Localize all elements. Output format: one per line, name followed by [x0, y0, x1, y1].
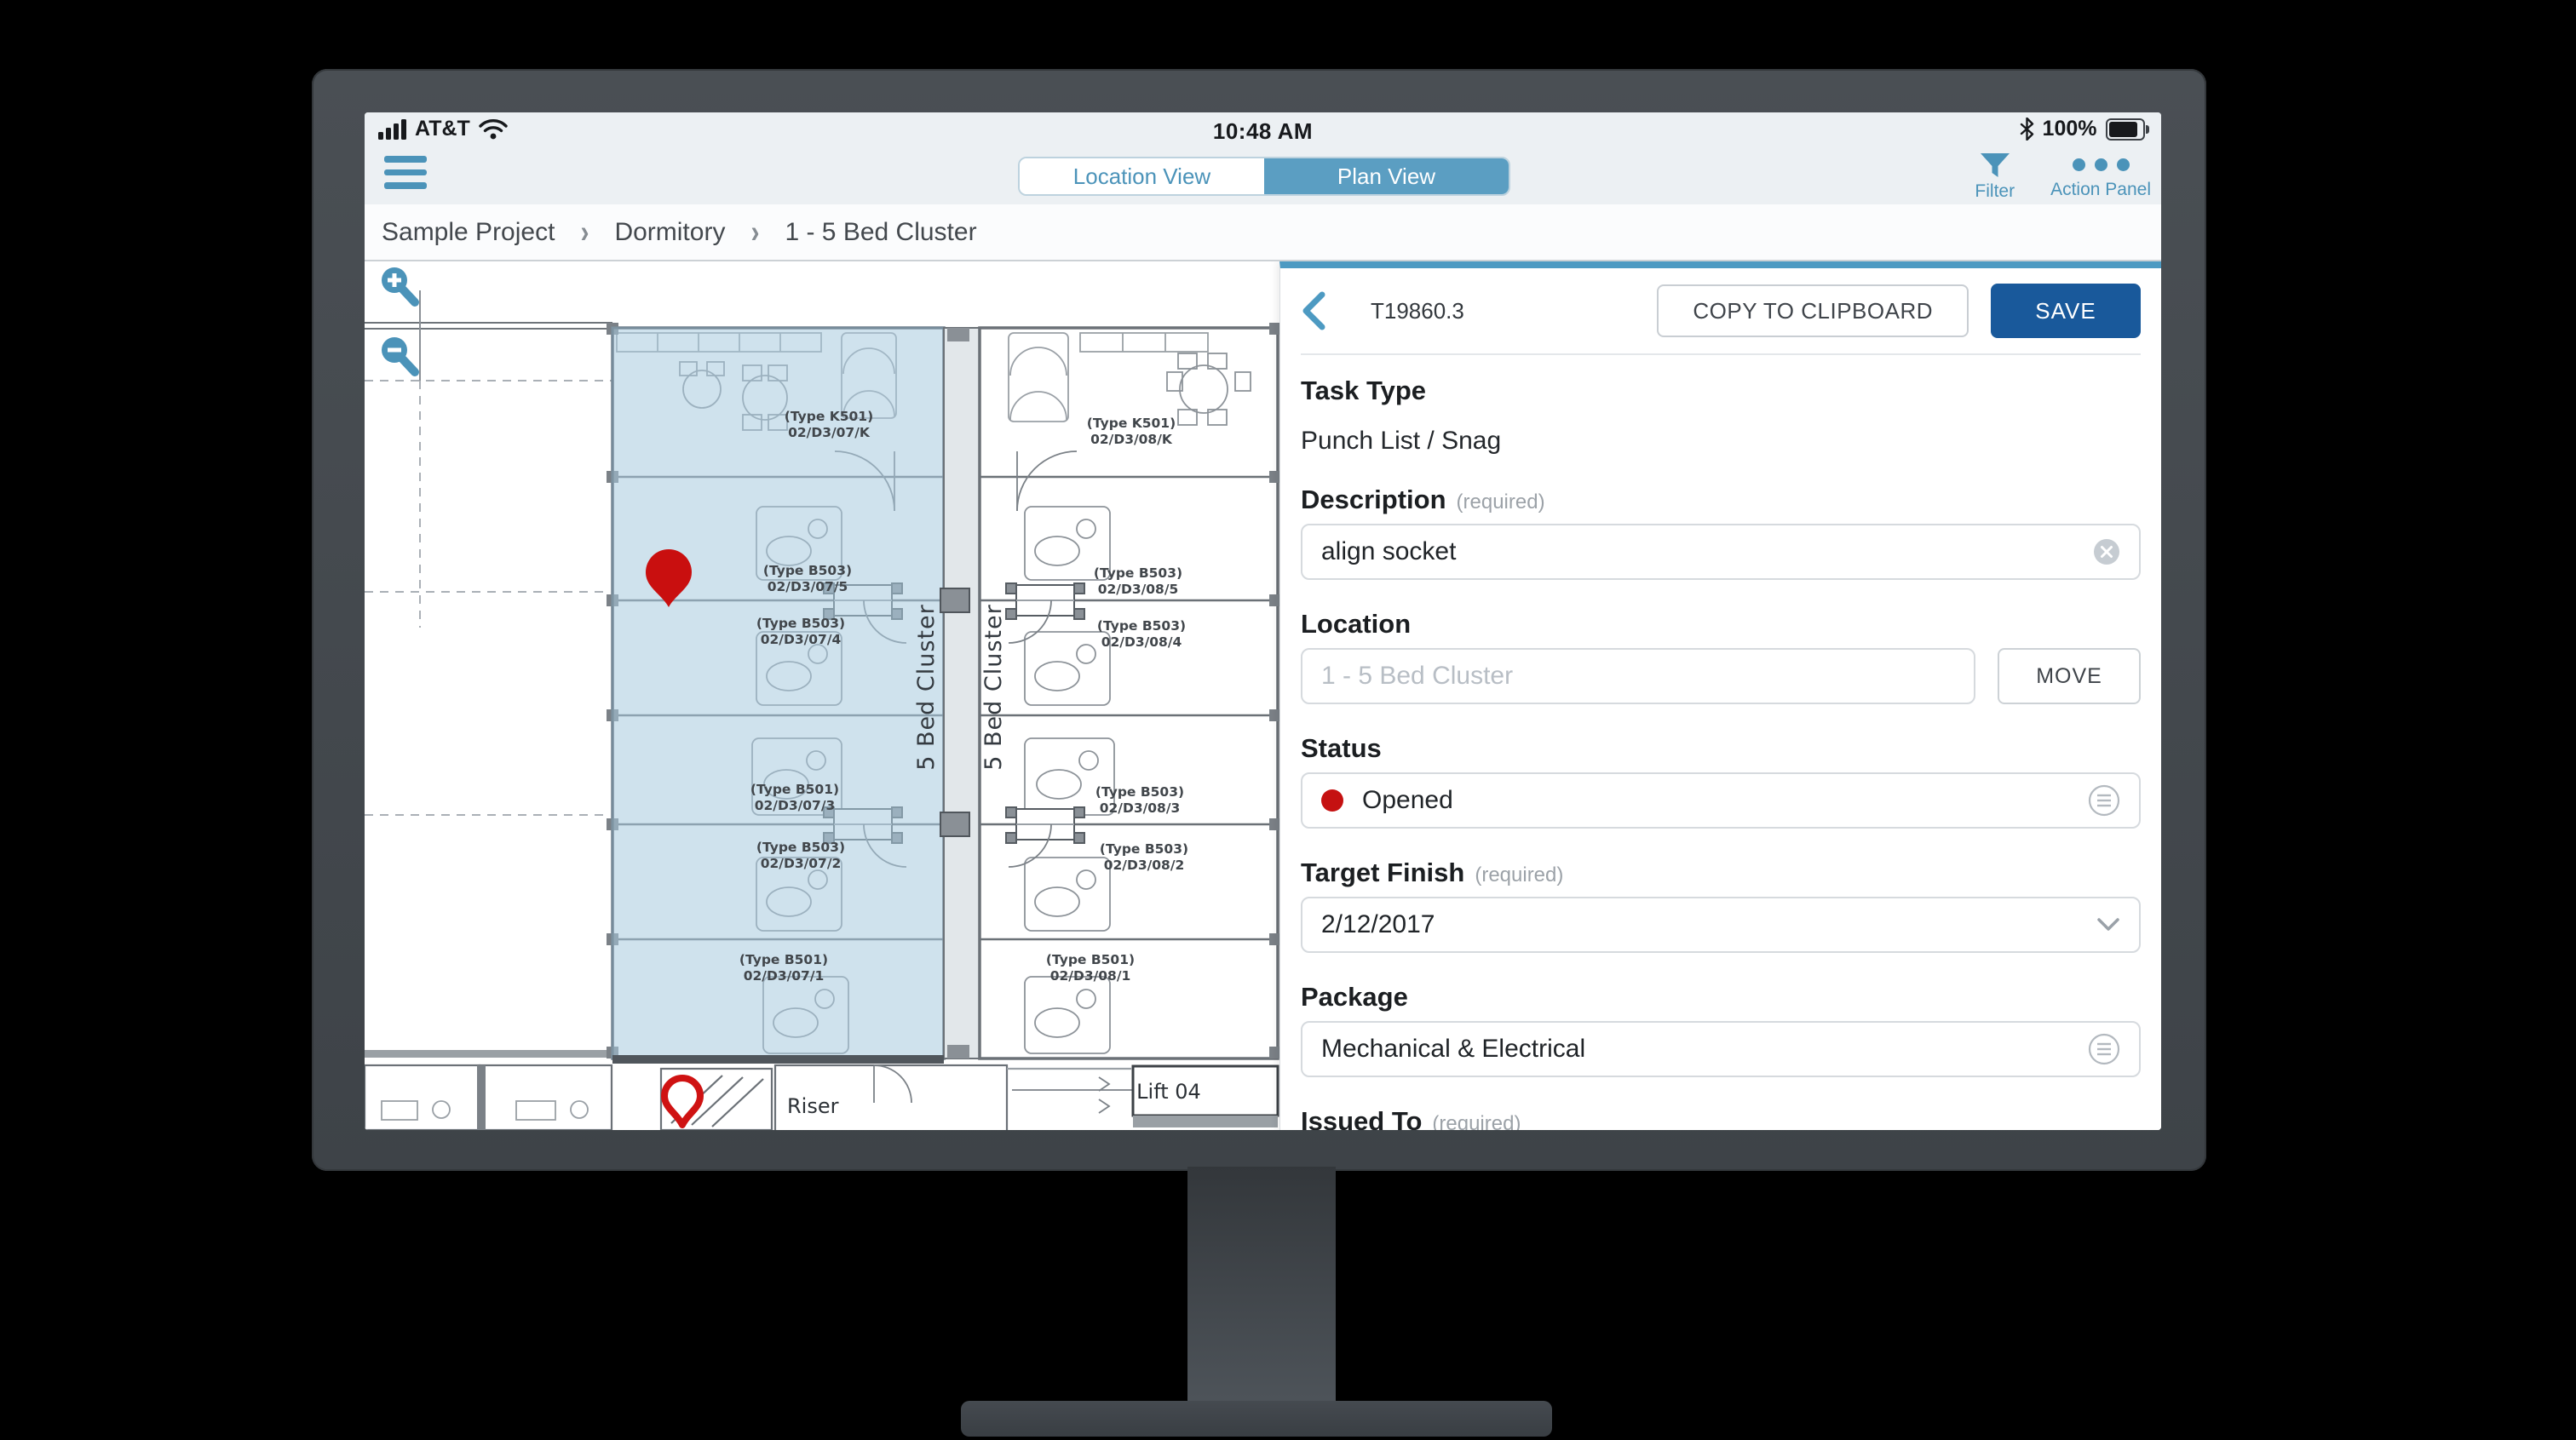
filter-funnel-icon	[1979, 152, 2011, 179]
svg-text:02/D3/07/1: 02/D3/07/1	[744, 968, 825, 984]
target-finish-label: Target Finish (required)	[1301, 858, 2141, 888]
location-input: 1 - 5 Bed Cluster	[1301, 648, 1975, 704]
svg-text:(Type B501): (Type B501)	[1046, 952, 1135, 967]
svg-text:(Type B503): (Type B503)	[1095, 784, 1184, 800]
package-select[interactable]: Mechanical & Electrical	[1301, 1021, 2141, 1077]
svg-text:(Type K501): (Type K501)	[1087, 416, 1176, 431]
issued-to-label: Issued To (required)	[1301, 1106, 2141, 1130]
copy-to-clipboard-button[interactable]: COPY TO CLIPBOARD	[1657, 284, 1969, 337]
svg-text:(Type B503): (Type B503)	[756, 616, 845, 631]
location-label: Location	[1301, 609, 2141, 640]
status-label: Status	[1301, 733, 2141, 764]
view-toggle: Location View Plan View	[1018, 157, 1510, 196]
task-detail-panel: T19860.3 COPY TO CLIPBOARD SAVE Task Typ…	[1279, 261, 2161, 1130]
plan-context-lines	[365, 290, 612, 1058]
monitor-stand-neck	[1187, 1167, 1336, 1407]
svg-text:(Type K501): (Type K501)	[785, 409, 873, 424]
svg-text:5 Bed Cluster: 5 Bed Cluster	[980, 604, 1007, 770]
status-dot	[1321, 789, 1343, 812]
zoom-out-button[interactable]	[382, 337, 415, 372]
svg-text:02/D3/07/4: 02/D3/07/4	[761, 632, 842, 647]
move-button[interactable]: MOVE	[1998, 648, 2141, 704]
required-hint: (required)	[1457, 491, 1545, 514]
svg-text:02/D3/08/5: 02/D3/08/5	[1098, 582, 1179, 597]
app-screen: AT&T 10:48 AM 100% Location View	[365, 112, 2161, 1130]
svg-text:02/D3/07/K: 02/D3/07/K	[788, 425, 871, 440]
ellipsis-icon	[2073, 152, 2130, 177]
party-wall	[940, 328, 980, 1058]
panel-header: T19860.3 COPY TO CLIPBOARD SAVE	[1301, 268, 2141, 355]
save-button[interactable]: SAVE	[1991, 284, 2141, 338]
svg-text:(Type B501): (Type B501)	[739, 952, 828, 967]
clock: 10:48 AM	[365, 118, 2161, 145]
svg-text:(Type B503): (Type B503)	[1100, 841, 1188, 857]
battery-percent: 100%	[2043, 117, 2097, 141]
chevron-left-icon	[1301, 290, 1326, 331]
list-select-icon	[2088, 1033, 2120, 1065]
status-bar: AT&T 10:48 AM 100%	[365, 112, 2161, 148]
svg-text:02/D3/07/2: 02/D3/07/2	[761, 856, 842, 871]
tab-location-view[interactable]: Location View	[1020, 158, 1264, 194]
breadcrumb: Sample Project › Dormitory › 1 - 5 Bed C…	[365, 204, 2161, 261]
svg-text:02/D3/08/2: 02/D3/08/2	[1104, 858, 1185, 873]
svg-text:02/D3/07/5: 02/D3/07/5	[768, 579, 848, 594]
svg-text:(Type B501): (Type B501)	[750, 782, 839, 797]
required-hint: (required)	[1432, 1112, 1521, 1130]
breadcrumb-project[interactable]: Sample Project	[382, 218, 555, 247]
svg-text:02/D3/08/K: 02/D3/08/K	[1090, 432, 1173, 447]
description-label: Description (required)	[1301, 485, 2141, 515]
action-panel-button[interactable]: Action Panel	[2050, 152, 2151, 202]
filter-button[interactable]: Filter	[1975, 152, 2015, 202]
svg-text:(Type B503): (Type B503)	[763, 563, 852, 578]
list-select-icon	[2088, 784, 2120, 817]
target-finish-select[interactable]: 2/12/2017	[1301, 897, 2141, 953]
zoom-in-button[interactable]	[382, 267, 415, 302]
breadcrumb-location[interactable]: 1 - 5 Bed Cluster	[785, 218, 976, 247]
tab-plan-view[interactable]: Plan View	[1264, 158, 1509, 194]
back-button[interactable]	[1301, 287, 1335, 335]
chevron-down-icon	[2096, 917, 2120, 932]
status-value: Opened	[1362, 786, 2088, 815]
package-label: Package	[1301, 982, 2141, 1013]
svg-text:02/D3/08/3: 02/D3/08/3	[1100, 800, 1181, 816]
svg-text:5 Bed Cluster: 5 Bed Cluster	[913, 604, 940, 770]
menu-icon[interactable]	[384, 156, 427, 190]
svg-text:02/D3/07/3: 02/D3/07/3	[755, 798, 836, 813]
svg-text:(Type B503): (Type B503)	[1097, 618, 1186, 634]
chevron-right-icon: ›	[750, 214, 759, 250]
task-pin-outline[interactable]	[664, 1078, 700, 1125]
toolbar: Location View Plan View Filter Action Pa…	[365, 148, 2161, 204]
svg-text:(Type B503): (Type B503)	[1094, 565, 1182, 581]
required-hint: (required)	[1475, 863, 1563, 887]
description-input[interactable]: align socket	[1301, 524, 2141, 580]
svg-text:(Type B503): (Type B503)	[756, 840, 845, 855]
svg-text:Lift 04: Lift 04	[1136, 1080, 1201, 1104]
status-select[interactable]: Opened	[1301, 772, 2141, 829]
monitor-stand-base	[961, 1401, 1552, 1437]
selected-location-highlight[interactable]	[612, 328, 944, 1058]
battery-icon	[2106, 118, 2150, 141]
breadcrumb-building[interactable]: Dormitory	[614, 218, 725, 247]
bluetooth-icon	[2020, 118, 2034, 141]
task-type-label: Task Type	[1301, 376, 2141, 406]
task-id: T19860.3	[1371, 298, 1464, 324]
content-area: (Type K501) 02/D3/07/K (Type B503) 02/D3…	[365, 261, 2161, 1130]
task-type-value: Punch List / Snag	[1301, 427, 2141, 456]
chevron-right-icon: ›	[580, 214, 589, 250]
svg-text:02/D3/08/1: 02/D3/08/1	[1050, 968, 1131, 984]
svg-text:Riser: Riser	[787, 1094, 839, 1118]
clear-input-icon[interactable]	[2093, 538, 2120, 565]
svg-text:02/D3/08/4: 02/D3/08/4	[1101, 634, 1182, 650]
